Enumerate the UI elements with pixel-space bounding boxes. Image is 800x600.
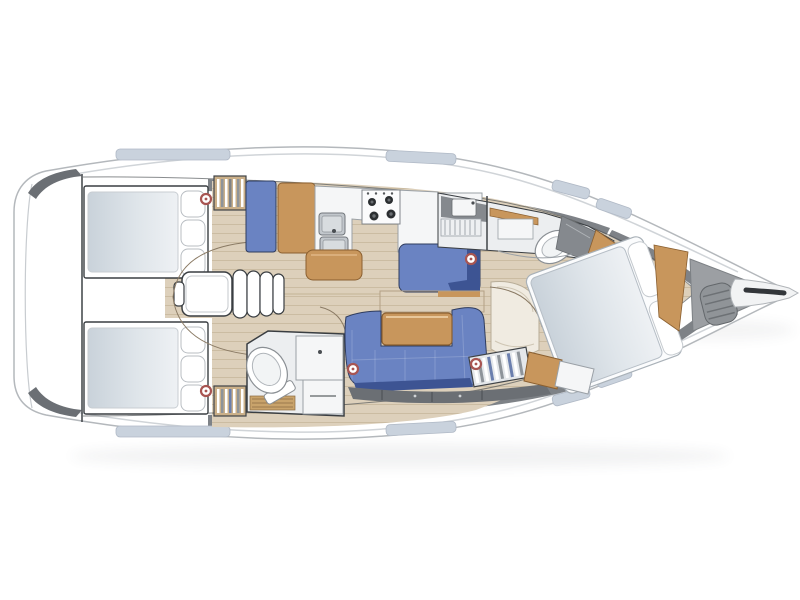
marker <box>466 254 476 264</box>
bow <box>654 245 798 331</box>
marker <box>348 364 358 374</box>
stove-knob <box>391 192 393 194</box>
stove-top <box>362 190 400 224</box>
stove <box>362 190 400 224</box>
floorplan-svg: Top-down interior floor plan of a sailin… <box>0 0 800 600</box>
bench-slats <box>445 220 475 235</box>
engine-compartment <box>174 272 232 316</box>
step <box>260 272 273 316</box>
vanity-cabinet <box>303 380 343 414</box>
pillow <box>181 356 205 382</box>
sink-basin <box>322 216 342 232</box>
vanity-top <box>296 336 343 380</box>
step <box>233 270 247 318</box>
pillow <box>181 191 205 217</box>
stove-knob <box>375 192 377 194</box>
deck-window <box>116 426 230 437</box>
galley-seat <box>246 181 276 252</box>
pillow <box>181 220 205 246</box>
latch <box>414 395 417 398</box>
hanging-locker <box>214 176 246 210</box>
bed-mattress <box>88 328 178 408</box>
engine-box <box>182 272 232 316</box>
faucet <box>318 350 322 354</box>
stove-knob <box>383 192 385 194</box>
latch <box>459 395 462 398</box>
stove-knob <box>367 192 369 194</box>
chaise-wood-trim <box>438 291 480 297</box>
bed-mattress <box>88 192 178 272</box>
pillow <box>181 249 205 275</box>
chaise-longue <box>399 244 480 297</box>
anchor-roller-slot <box>746 290 784 293</box>
hanging-locker <box>214 386 246 416</box>
deck-window <box>116 149 230 160</box>
head-vanity <box>296 336 343 414</box>
head-cabinet <box>498 219 533 239</box>
faucet <box>471 201 474 204</box>
step <box>273 274 284 314</box>
bed-pillows <box>181 191 205 275</box>
step <box>247 271 260 317</box>
galley-wood-cabinet <box>278 183 315 253</box>
marker <box>471 359 481 369</box>
slat-bench <box>441 219 481 236</box>
marker <box>201 194 211 204</box>
marker <box>201 386 211 396</box>
boat-interior-floorplan: Top-down interior floor plan of a sailin… <box>0 0 800 600</box>
faucet <box>332 229 336 233</box>
